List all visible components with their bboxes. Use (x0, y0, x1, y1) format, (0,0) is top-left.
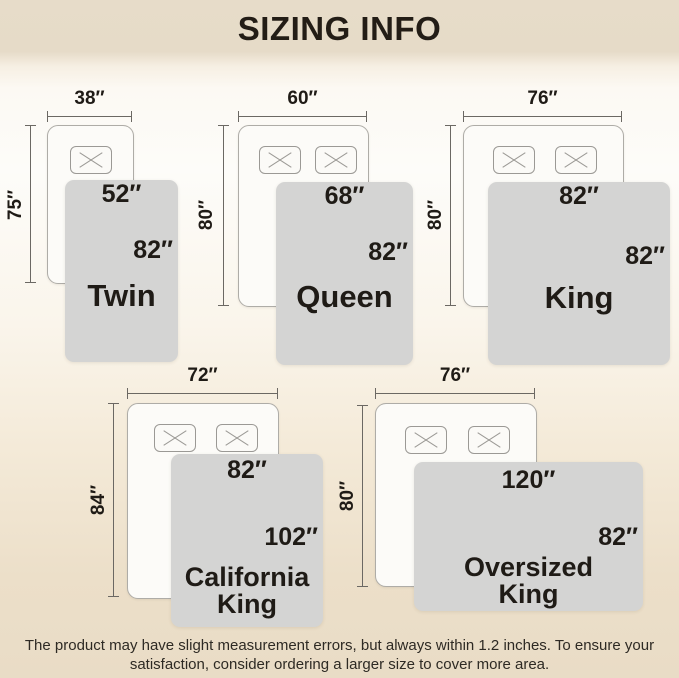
blanket-length-label: 82″ (598, 523, 638, 552)
pillow-icon (405, 426, 447, 454)
disclaimer: The product may have slight measurement … (0, 636, 679, 674)
length-dimension-line (362, 405, 363, 587)
pillow-icon (468, 426, 510, 454)
size-name: Oversized King (414, 554, 643, 608)
blanket: 120″ 82″ Oversized King (414, 462, 643, 611)
blanket-width-label: 120″ (414, 466, 643, 495)
disclaimer-line-1: The product may have slight measurement … (0, 636, 679, 655)
width-dimension-line (375, 393, 535, 394)
sizing-infographic: SIZING INFO 38″ 75″ 52″ 82″ Twin 60″ 80″… (0, 0, 679, 678)
disclaimer-line-2: satisfaction, consider ordering a larger… (0, 655, 679, 674)
length-dimension-label: 80″ (337, 466, 359, 526)
width-dimension-label: 76″ (375, 365, 535, 387)
oversized-king-section: 76″ 80″ 120″ 82″ Oversized King (0, 0, 679, 678)
